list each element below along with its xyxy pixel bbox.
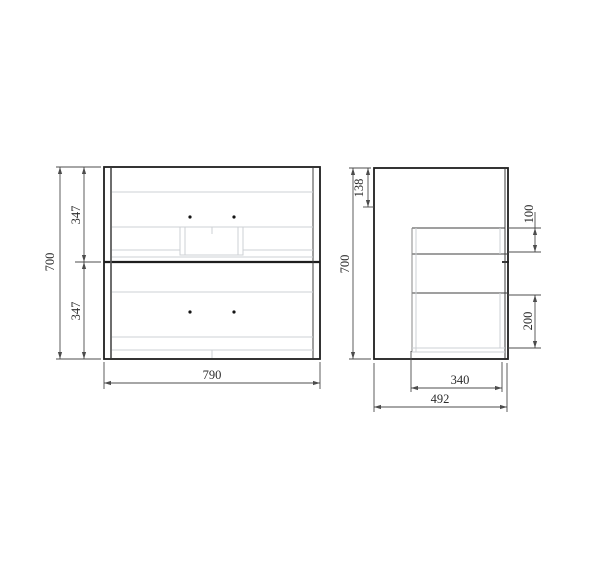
arrow-down bbox=[366, 200, 370, 207]
arrow-left bbox=[104, 381, 111, 385]
front-upper-drawer-label: 347 bbox=[69, 206, 83, 225]
technical-drawing-canvas: 700 347 347 790 700 138 100 200 340 492 bbox=[0, 0, 600, 579]
handle-hole-dot bbox=[188, 215, 191, 218]
arrow-up bbox=[533, 295, 537, 302]
side-lower-box-label: 200 bbox=[521, 312, 535, 331]
front-total-height-label: 700 bbox=[43, 253, 57, 272]
side-total-depth-label: 492 bbox=[431, 392, 450, 406]
arrow-right bbox=[313, 381, 320, 385]
arrow-down bbox=[533, 341, 537, 348]
arrow-up bbox=[533, 228, 537, 235]
front-lower-drawer-label: 347 bbox=[69, 302, 83, 321]
front-total-width-label: 790 bbox=[203, 368, 222, 382]
handle-hole-dot bbox=[188, 310, 191, 313]
side-upper-box-label: 100 bbox=[522, 205, 536, 224]
arrow-right bbox=[500, 405, 507, 409]
arrow-up bbox=[366, 168, 370, 175]
side-total-height-label: 700 bbox=[338, 255, 352, 274]
arrow-left bbox=[411, 386, 418, 390]
arrow-up bbox=[82, 167, 86, 174]
cabinet-outlines bbox=[104, 167, 509, 359]
side-drawer-depth-label: 340 bbox=[451, 373, 470, 387]
arrow-up bbox=[351, 168, 355, 175]
side-view-outline bbox=[374, 168, 508, 359]
arrow-up bbox=[82, 262, 86, 269]
panel-detail-lines bbox=[112, 192, 505, 358]
arrow-down bbox=[82, 255, 86, 262]
handle-hole-dot bbox=[232, 215, 235, 218]
cabinet-dimension-drawing: 700 347 347 790 700 138 100 200 340 492 bbox=[0, 0, 600, 579]
arrow-down bbox=[58, 352, 62, 359]
handle-hole-dot bbox=[232, 310, 235, 313]
arrow-left bbox=[374, 405, 381, 409]
side-top-offset-label: 138 bbox=[352, 179, 366, 198]
arrow-up bbox=[58, 167, 62, 174]
arrow-right bbox=[495, 386, 502, 390]
arrow-down bbox=[82, 352, 86, 359]
arrow-down bbox=[533, 245, 537, 252]
arrow-down bbox=[351, 352, 355, 359]
